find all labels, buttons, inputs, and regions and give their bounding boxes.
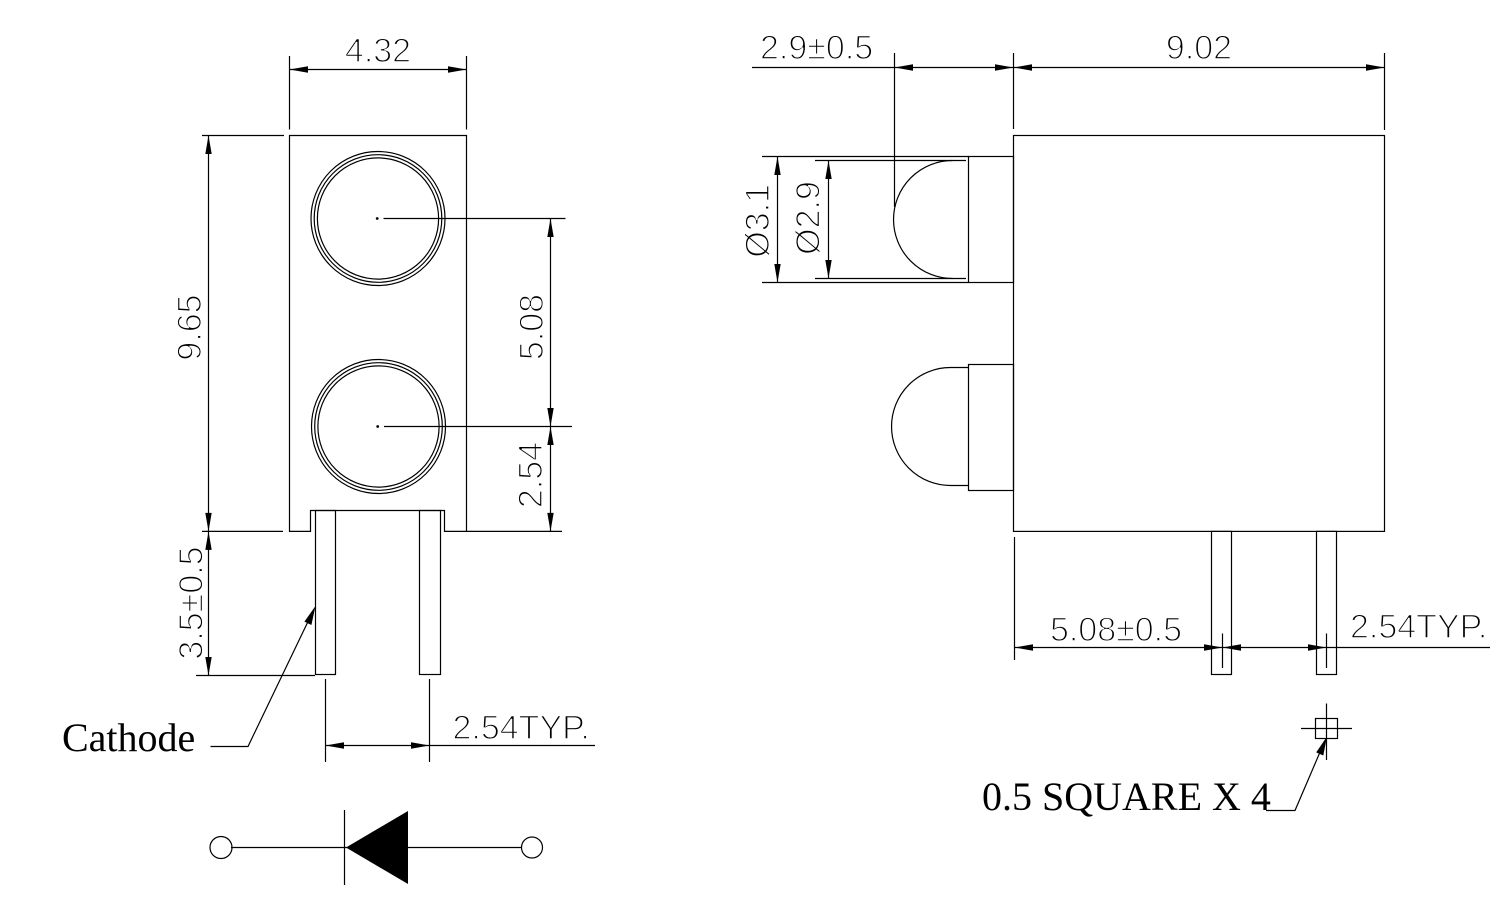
svg-text:9.02: 9.02 bbox=[1166, 29, 1232, 67]
svg-text:2.54TYP.: 2.54TYP. bbox=[1350, 608, 1487, 646]
svg-text:Ø3.1: Ø3.1 bbox=[739, 184, 777, 258]
svg-text:2.54TYP.: 2.54TYP. bbox=[453, 709, 590, 747]
svg-text:5.08±0.5: 5.08±0.5 bbox=[1050, 611, 1182, 649]
svg-text:9.65: 9.65 bbox=[171, 294, 209, 360]
svg-text:4.32: 4.32 bbox=[345, 32, 411, 70]
svg-text:2.9±0.5: 2.9±0.5 bbox=[760, 29, 873, 67]
svg-text:Cathode: Cathode bbox=[62, 715, 195, 760]
svg-text:0.5 SQUARE X 4: 0.5 SQUARE X 4 bbox=[982, 774, 1271, 819]
svg-text:2.54: 2.54 bbox=[512, 442, 550, 508]
svg-text:5.08: 5.08 bbox=[513, 294, 551, 360]
svg-text:3.5±0.5: 3.5±0.5 bbox=[173, 546, 211, 659]
svg-text:Ø2.9: Ø2.9 bbox=[790, 181, 828, 255]
